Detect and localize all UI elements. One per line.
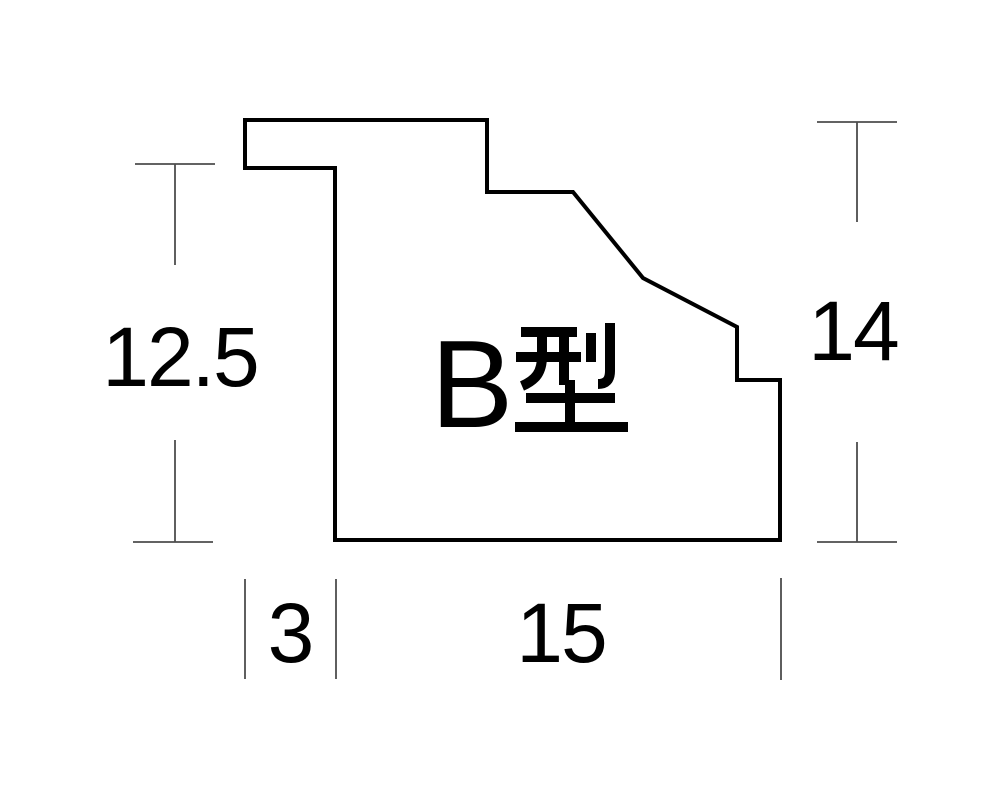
moulding-profile-diagram: 12.5 14 3 15 B (0, 0, 1000, 800)
profile-type-label-latin: B (431, 323, 514, 447)
dimension-bottom-widths (245, 578, 781, 680)
kata-stroke-soil-bottom-bar (515, 422, 628, 432)
dim-label-rabbet-width: 3 (268, 591, 313, 675)
kata-stroke-top-bar2 (516, 352, 581, 362)
kanji-kata-glyph (515, 323, 628, 432)
dim-label-right-height: 14 (808, 289, 897, 373)
kata-stroke-hook-vertical (598, 323, 610, 384)
dim-label-base-width: 15 (516, 591, 605, 675)
dim-label-left-height: 12.5 (102, 315, 258, 399)
